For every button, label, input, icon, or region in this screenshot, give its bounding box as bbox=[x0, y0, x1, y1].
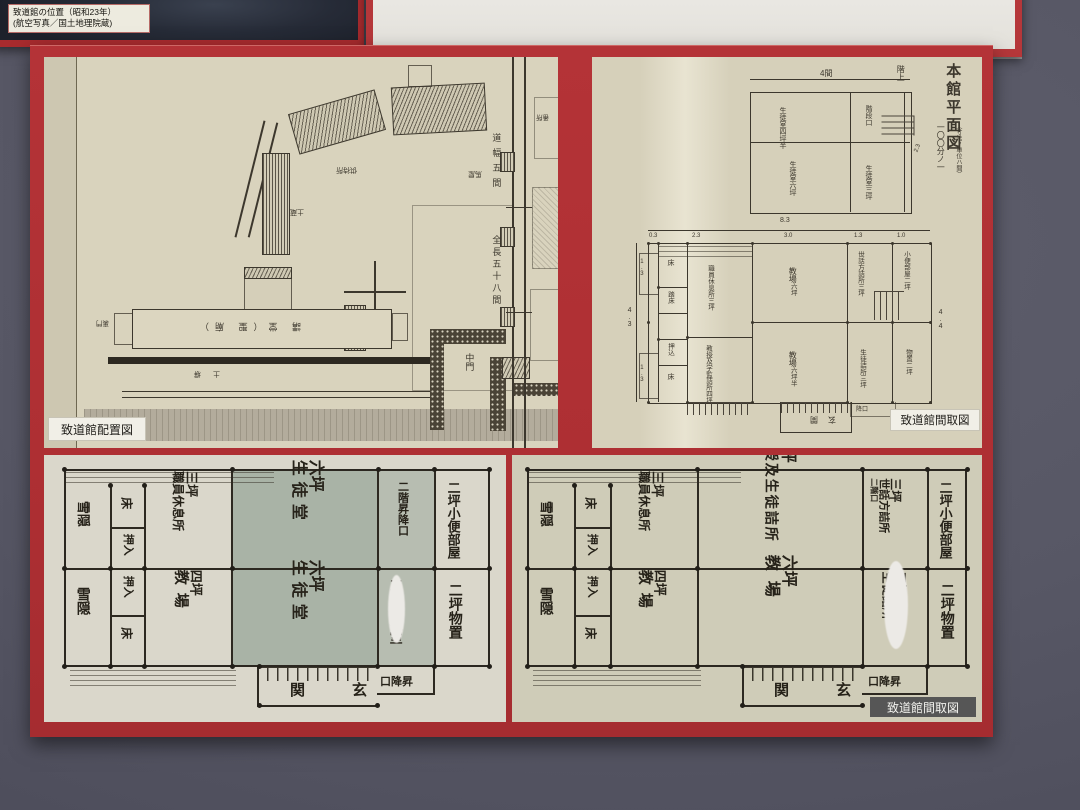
hand-a-shoko-b bbox=[377, 693, 435, 695]
room-seito: 生徒詰所三坪 bbox=[858, 349, 865, 388]
hand-b-shoko-b bbox=[862, 693, 928, 695]
site-east-block-3 bbox=[530, 289, 558, 361]
hand-b-hc2 bbox=[574, 615, 611, 617]
site-guardhouse-label: 番所 bbox=[536, 113, 549, 120]
room-class-top-name: 教場 bbox=[788, 267, 797, 283]
lower-dim-s3: 1.3 bbox=[854, 233, 862, 240]
hand-b-class-name: 教場 bbox=[637, 570, 653, 650]
hand-a-hall-top-size: 六坪 bbox=[306, 460, 323, 560]
hand-b-paper-scratch bbox=[884, 561, 908, 649]
hand-a-w1 bbox=[110, 485, 112, 667]
hand-b-porch-b bbox=[742, 705, 864, 707]
site-compound-wall bbox=[108, 357, 438, 364]
room-kyoju-l1: 教授及 bbox=[704, 345, 711, 365]
upper-room1-label: 生徒室四坪半 bbox=[778, 107, 786, 149]
room-kyoju-l2: 学監詰所 bbox=[704, 365, 711, 391]
hand-a-shoko-r bbox=[433, 667, 435, 693]
display-wall: 致道館の位置（昭和23年） (航空写真／国土地理院蔵) 土蔵 供待所 馬屋 bbox=[0, 0, 1080, 810]
hand-a-hall-top-name: 生徒堂 bbox=[289, 460, 306, 560]
hand-b-hall-bottom: 六坪 教場 bbox=[762, 555, 796, 665]
lower-hc4 bbox=[658, 365, 687, 366]
site-gate-roof bbox=[502, 357, 530, 379]
printed-node-dots bbox=[647, 242, 650, 245]
hand-a-staff-size: 三坪 bbox=[184, 471, 198, 561]
site-building-roof-a bbox=[288, 89, 386, 154]
hand-b-nikai-label: 二階口 bbox=[869, 478, 877, 536]
hand-b-hall-top-size: 六坪 bbox=[779, 455, 796, 567]
room-seito-name: 生徒詰所 bbox=[858, 349, 865, 375]
upper-room4-size: 三坪 bbox=[865, 186, 872, 200]
lower-v2 bbox=[687, 243, 688, 402]
room-staff-size: 三坪 bbox=[706, 298, 713, 311]
upper-plan-right-double bbox=[904, 92, 905, 212]
hand-b-setchin: 雪隠 bbox=[539, 587, 554, 615]
site-building-roof-b bbox=[391, 83, 487, 136]
lower-dim-total: 8.3 bbox=[780, 217, 790, 225]
hand-b-benjo-name: 小便部屋 bbox=[938, 507, 953, 559]
hand-b-sewakata-name: 世話方詰所 bbox=[877, 478, 889, 536]
lower-dim-s4: 1.0 bbox=[897, 233, 905, 240]
upper-dim-right: 2.3 bbox=[914, 143, 923, 153]
printed-plan-caption: 致道館間取図 bbox=[890, 409, 980, 431]
hand-b-benjo: 二坪小便部屋 bbox=[938, 481, 952, 559]
room-staff: 職員休息所三坪 bbox=[706, 265, 713, 311]
lower-closet-bottom bbox=[639, 353, 659, 399]
hand-b-bottom-veranda bbox=[533, 669, 701, 686]
hand-a-entrance-steps bbox=[257, 667, 375, 681]
upper-plan-vdiv bbox=[850, 92, 851, 212]
hand-a-hmid bbox=[64, 568, 490, 570]
printed-plan-caption-text: 致道館間取図 bbox=[901, 412, 970, 428]
printed-plan-image: 本館平面図 一〇〇分ノ一 （寸法ノ単位ハ間） 階上 4間 2.3 生徒室四坪半 … bbox=[592, 57, 982, 448]
site-plan-caption: 致道館配置図 bbox=[48, 417, 146, 441]
site-plan-image: 土蔵 供待所 馬屋 講 堂（聖 廟） 裏門 土 塀 堀 bbox=[44, 57, 558, 448]
hand-a-w2 bbox=[144, 485, 146, 667]
site-storehouse bbox=[262, 153, 290, 255]
hand-b-hall-top-name: 教授及生徒詰所 bbox=[764, 455, 779, 567]
room-benjo: 小便部屋二坪 bbox=[902, 251, 909, 290]
lower-stairs bbox=[874, 291, 904, 320]
site-waiting-room-label: 供待所 bbox=[336, 165, 357, 173]
lower-dim-s0: 0.3 bbox=[649, 233, 657, 240]
hand-a-setchin: 雪隠 bbox=[76, 587, 91, 615]
upper-room4-name: 生徒室 bbox=[865, 165, 872, 186]
hand-a-paper-scratch bbox=[388, 575, 405, 643]
upper-room4-label: 生徒室三坪 bbox=[864, 165, 872, 200]
hand-b-node-dots bbox=[525, 467, 530, 472]
lower-entrance-steps bbox=[781, 402, 849, 413]
site-road-tick-2 bbox=[506, 312, 532, 313]
room-class-bottom-name: 教場 bbox=[788, 351, 797, 367]
site-road-width-label: 道幅五間 bbox=[491, 133, 501, 193]
hand-a-class-name: 教場 bbox=[173, 570, 189, 650]
site-road-line-west bbox=[512, 57, 514, 448]
hand-b-staff-size: 三坪 bbox=[650, 471, 664, 561]
hand-a-top-veranda bbox=[66, 472, 274, 483]
hand-a-node-dots bbox=[62, 467, 67, 472]
site-approach-line-1 bbox=[235, 121, 266, 238]
hand-b-sewakata-size: 三坪 bbox=[889, 478, 902, 536]
site-road-tick-1 bbox=[506, 207, 532, 208]
room-class-top: 教場六坪 bbox=[788, 267, 797, 296]
site-small-house-roof bbox=[244, 267, 292, 279]
hand-b-top-veranda bbox=[529, 472, 741, 483]
hand-a-monooki-size: 二坪 bbox=[448, 583, 464, 611]
hand-a-monooki-name: 物置 bbox=[448, 611, 464, 639]
hand-a-monooki: 二坪物置 bbox=[448, 583, 463, 639]
aerial-photo-label-line1: 致道館の位置（昭和23年） bbox=[13, 7, 145, 18]
lower-left-steps bbox=[687, 402, 752, 415]
hand-b-oshi1: 押入 bbox=[585, 534, 597, 556]
hand-b-toko2: 床 bbox=[584, 627, 597, 639]
hand-b-class: 四坪 教場 bbox=[637, 570, 666, 650]
site-gate-wall-top bbox=[430, 329, 506, 344]
upper-room1-size: 四坪半 bbox=[779, 128, 786, 149]
lower-dim-right: 4.4 bbox=[936, 309, 944, 330]
hand-b-sewakata: 三坪 世話方詰所 二階口 bbox=[869, 478, 902, 536]
printed-scale: 一〇〇分ノ一 bbox=[936, 123, 945, 171]
site-road-gate-1 bbox=[500, 152, 515, 172]
site-east-block-2 bbox=[532, 187, 558, 269]
hand-b-hall-top: 六坪 教授及生徒詰所 bbox=[764, 455, 795, 567]
room-oshikomi: 押込 bbox=[666, 343, 673, 356]
upper-plan-outline bbox=[750, 92, 912, 214]
hand-b-benjo-size: 二坪 bbox=[938, 481, 953, 507]
hand-b-w1 bbox=[574, 485, 576, 667]
hand-plan-b-image: 雪隠 床 押入 三坪 職員休息所 六坪 教授及生徒詰所 三坪 世話方詰所 二階口… bbox=[512, 455, 982, 722]
hand-a-class-size: 四坪 bbox=[189, 570, 203, 650]
lower-hc1 bbox=[658, 287, 687, 288]
lower-hc2 bbox=[658, 313, 687, 314]
hand-a-oshi1: 押入 bbox=[121, 534, 133, 556]
room-class-bottom: 教場六坪半 bbox=[788, 351, 797, 387]
hand-b-hall-bottom-name: 教場 bbox=[762, 555, 779, 665]
room-monooki: 物置二坪 bbox=[904, 349, 911, 375]
hand-a-porch-l bbox=[257, 667, 259, 707]
printed-scale-note: （寸法ノ単位ハ間） bbox=[954, 123, 961, 177]
hand-b-w2 bbox=[610, 485, 612, 667]
site-storehouse-label: 土蔵 bbox=[290, 207, 304, 215]
upper-plan-hdiv bbox=[750, 142, 910, 143]
hand-b-staff-name: 職員休息所 bbox=[638, 471, 651, 561]
site-gate-wall-left bbox=[430, 344, 444, 430]
lower-h-left bbox=[687, 337, 752, 338]
upper-dim-top: 4間 bbox=[820, 69, 832, 78]
aerial-photo-label: 致道館の位置（昭和23年） (航空写真／国土地理院蔵) bbox=[8, 4, 150, 33]
room-monooki-name: 物置 bbox=[904, 349, 911, 362]
room-sewakata-size: 三坪 bbox=[856, 284, 863, 297]
site-middle-gate-label: 中門 bbox=[464, 353, 474, 371]
room-class-bottom-size: 六坪半 bbox=[789, 367, 796, 387]
aerial-photo-label-line2: (航空写真／国土地理院蔵) bbox=[13, 18, 145, 29]
site-gate-wall-east bbox=[514, 383, 558, 396]
upper-dim-line bbox=[750, 79, 910, 80]
room-staff-name: 職員休息所 bbox=[706, 265, 713, 298]
hand-b-monooki: 二坪物置 bbox=[940, 583, 955, 639]
hand-a-benjo-size: 二坪 bbox=[446, 481, 461, 507]
site-hall-label: 講 堂（聖 廟） bbox=[194, 321, 301, 331]
hand-b-class-size: 四坪 bbox=[653, 570, 667, 650]
site-ground-band bbox=[84, 409, 558, 441]
room-seito-size: 三坪 bbox=[858, 375, 865, 388]
site-road-length-label: 全長五十八間 bbox=[491, 235, 501, 307]
hand-a-shoko-label: 口降昇 bbox=[380, 677, 413, 689]
hand-a-toko1: 床 bbox=[120, 497, 133, 509]
lower-entrance-label: 玄関 bbox=[800, 415, 836, 424]
room-toko1: 床 bbox=[666, 259, 674, 266]
site-wall-label: 土 塀 bbox=[189, 369, 220, 377]
hand-a-staff-name: 職員休息所 bbox=[172, 471, 185, 561]
room-benjo-size: 二坪 bbox=[902, 277, 909, 290]
lower-hc3 bbox=[658, 339, 687, 340]
lower-dim-s1: 2.3 bbox=[692, 233, 700, 240]
hand-b-monooki-name: 物置 bbox=[940, 611, 956, 639]
hand-a-class: 四坪 教場 bbox=[173, 570, 202, 650]
site-rear-gate-box bbox=[114, 313, 133, 345]
upper-room3-label: 生徒室六坪 bbox=[788, 161, 796, 196]
room-sewakata: 世話方詰所三坪 bbox=[856, 251, 863, 297]
site-plan-caption-text: 致道館配置図 bbox=[61, 421, 133, 438]
site-road-line-east bbox=[524, 57, 526, 448]
hand-a-hc2 bbox=[110, 615, 145, 617]
hand-b-entrance-label: 関 玄 bbox=[774, 683, 867, 699]
main-board: 土蔵 供待所 馬屋 講 堂（聖 廟） 裏門 土 塀 堀 bbox=[30, 45, 993, 737]
room-monooki-size: 二坪 bbox=[904, 362, 911, 375]
site-hall-annex bbox=[392, 313, 408, 341]
hand-a-staff: 三坪 職員休息所 bbox=[172, 471, 198, 561]
site-stable-label: 馬屋 bbox=[468, 169, 482, 177]
hand-plan-b-caption: 致道館間取図 bbox=[870, 697, 976, 717]
hand-b-oshi2: 押入 bbox=[585, 576, 597, 598]
hand-a-porch-b bbox=[257, 705, 377, 707]
hand-b-toko1: 床 bbox=[584, 497, 597, 509]
hand-a-setchin-top: 雪隠 bbox=[76, 501, 90, 527]
lower-veranda-top bbox=[658, 245, 752, 257]
site-top-gate-box bbox=[408, 65, 432, 87]
room-benjo-name: 小便部屋 bbox=[902, 251, 909, 277]
hand-plan-a-image: 雪隠 床 押入 三坪 職員休息所 六坪 生徒堂 二階昇降口 二坪小便部屋 雪隠 … bbox=[44, 455, 506, 722]
upper-room2-label: 階段口 bbox=[864, 105, 872, 126]
hand-a-hall-bottom-size: 六坪 bbox=[306, 560, 323, 660]
calligraphy-paper bbox=[373, 0, 1015, 49]
hand-a-hall-bottom: 六坪 生徒堂 bbox=[289, 560, 323, 660]
hand-b-shoko-r bbox=[926, 667, 928, 693]
hand-b-monooki-size: 二坪 bbox=[940, 583, 956, 611]
lower-dim-top-line bbox=[648, 230, 930, 231]
upper-room1-name: 生徒室 bbox=[779, 107, 786, 128]
hand-a-bottom-veranda bbox=[70, 669, 236, 686]
lower-dim-left: 4.3 bbox=[625, 307, 633, 328]
hand-b-entrance-steps bbox=[742, 667, 862, 681]
site-road-gate-2 bbox=[500, 227, 515, 247]
room-class-top-size: 六坪 bbox=[789, 283, 796, 296]
site-road-gate-3 bbox=[500, 307, 515, 327]
hand-b-shoko-label: 口降昇 bbox=[868, 677, 901, 689]
site-rear-gate-label: 裏門 bbox=[96, 319, 109, 326]
hand-a-benjo: 二坪小便部屋 bbox=[446, 481, 460, 559]
site-stone-wall bbox=[122, 391, 442, 398]
room-kyoju: 教授及学監詰所四坪 bbox=[704, 345, 711, 404]
hand-a-stairs-label: 二階昇降口 bbox=[396, 481, 408, 536]
hand-a-toko2: 床 bbox=[120, 627, 133, 639]
site-small-house bbox=[244, 273, 292, 313]
lower-h-main bbox=[752, 322, 930, 323]
site-east-block-1 bbox=[534, 97, 558, 159]
room-toko2: 床 bbox=[666, 373, 674, 380]
site-left-margin bbox=[44, 57, 77, 448]
upper-plan-stairs bbox=[882, 116, 915, 136]
hand-b-porch-l bbox=[742, 667, 744, 707]
lower-dim-left-line bbox=[636, 243, 637, 402]
hand-a-entrance-label: 関 玄 bbox=[290, 683, 383, 699]
hand-a-benjo-name: 小便部屋 bbox=[446, 507, 461, 559]
hand-b-staff: 三坪 職員休息所 bbox=[638, 471, 664, 561]
lower-closet-top bbox=[639, 253, 659, 295]
room-fumidoko: 踏床 bbox=[666, 291, 673, 304]
room-sewakata-name: 世話方詰所 bbox=[856, 251, 863, 284]
upper-room3-name: 生徒室 bbox=[789, 161, 796, 182]
hand-b-hall-bottom-size: 六坪 bbox=[779, 555, 796, 665]
hand-a-hall-bottom-name: 生徒堂 bbox=[289, 560, 306, 660]
aerial-photo-panel: 致道館の位置（昭和23年） (航空写真／国土地理院蔵) bbox=[0, 0, 364, 47]
hand-b-setchin-top: 雪隠 bbox=[539, 501, 553, 527]
hand-a-hall-top: 六坪 生徒堂 bbox=[289, 460, 323, 560]
hand-plan-b-caption-text: 致道館間取図 bbox=[887, 699, 959, 716]
upper-room3-size: 六坪 bbox=[789, 182, 796, 196]
hand-a-hc1 bbox=[110, 527, 145, 529]
hand-b-hc1 bbox=[574, 527, 611, 529]
hand-a-oshi2: 押入 bbox=[121, 576, 133, 598]
lower-dim-s2: 3.0 bbox=[784, 233, 792, 240]
